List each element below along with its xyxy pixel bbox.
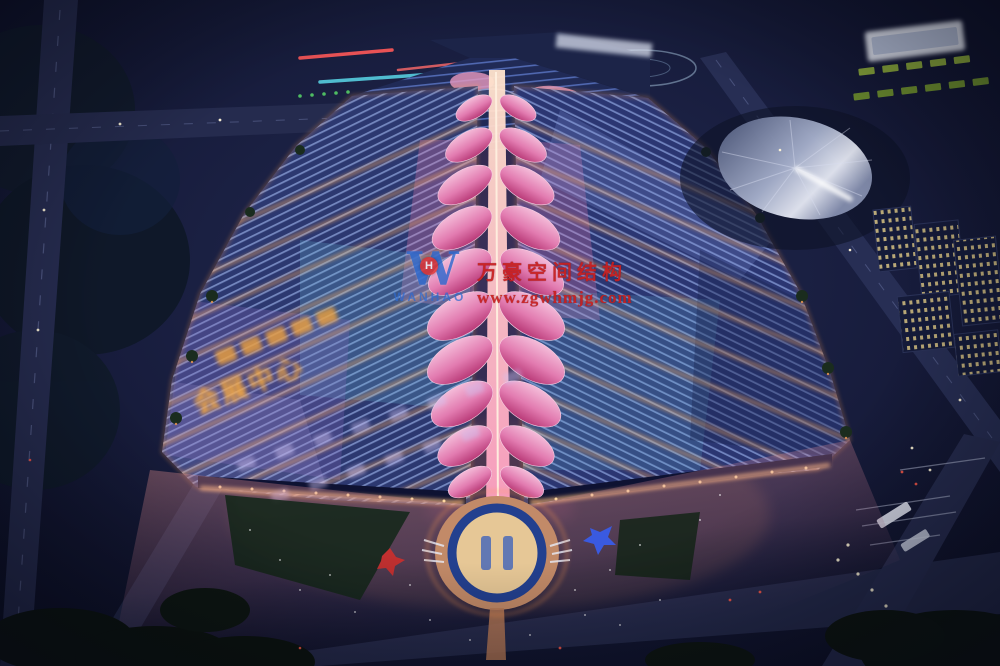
aerial-night-rendering: 会展中心 — [0, 0, 1000, 666]
scene-illustration: 会展中心 — [0, 0, 1000, 666]
vignette — [0, 0, 1000, 666]
